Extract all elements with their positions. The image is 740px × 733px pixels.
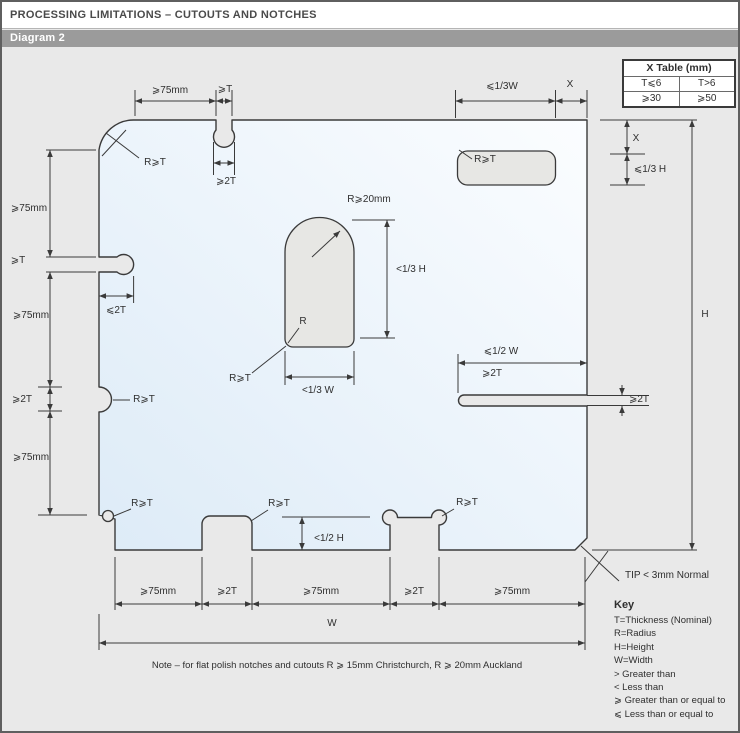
cutout-rounded-rect: [458, 151, 556, 185]
cutout-keyhole: [285, 218, 354, 348]
dim-bottom-2t-1: ⩾2T: [217, 587, 237, 597]
x-table-col1-header: T⩽6: [624, 77, 680, 91]
dim-slot-height: ⩾2T: [629, 395, 649, 405]
dim-cutout-offset-x-right: X: [633, 134, 640, 144]
key-lines: T=Thickness (Nominal)R=RadiusH=HeightW=W…: [614, 614, 740, 721]
key-line: < Less than: [614, 681, 740, 694]
note-text: Note – for flat polish notches and cutou…: [77, 660, 597, 671]
key-line: ⩾ Greater than or equal to: [614, 694, 740, 707]
dim-top-notch-2t: ⩾2T: [216, 177, 236, 187]
dim-top-notch-t: ⩾T: [218, 85, 233, 95]
dim-keyhole-width: <1/3 W: [302, 386, 334, 396]
key-line: ⩽ Less than or equal to: [614, 708, 740, 721]
x-table: X Table (mm) T⩽6 T>6 ⩾30 ⩾50: [622, 59, 736, 108]
dim-bottom-75-3: ⩾75mm: [494, 587, 530, 597]
key-line: T=Thickness (Nominal): [614, 614, 740, 627]
key-line: R=Radius: [614, 627, 740, 640]
key-legend: Key T=Thickness (Nominal)R=RadiusH=Heigh…: [614, 599, 740, 721]
dim-keyhole-height: <1/3 H: [396, 265, 426, 275]
label-bottom-notch2-radius: R⩾T: [456, 498, 478, 508]
dim-cutout-offset-x-top: X: [567, 80, 574, 90]
label-keyhole-radius: R⩾20mm: [347, 195, 390, 205]
label-left-notch-radius: R⩾T: [133, 395, 155, 405]
dim-left-slot-depth: ⩽2T: [106, 306, 126, 316]
key-line: > Greater than: [614, 668, 740, 681]
dim-cutout-height: ⩽1/3 H: [634, 165, 666, 175]
label-keyhole-corner-radius: R⩾T: [229, 374, 251, 384]
label-cutout-radius: R⩾T: [474, 155, 496, 165]
key-title: Key: [614, 599, 740, 611]
x-table-title: X Table (mm): [624, 61, 734, 77]
x-table-col2-header: T>6: [680, 77, 735, 91]
label-bottom-left-radius: R⩾T: [131, 499, 153, 509]
label-top-left-radius: R⩾T: [144, 158, 166, 168]
dim-bottom-notch-depth: <1/2 H: [314, 534, 344, 544]
dim-bottom-75-1: ⩾75mm: [140, 587, 176, 597]
key-line: W=Width: [614, 654, 740, 667]
dim-width: W: [327, 619, 336, 629]
dim-height: H: [701, 310, 708, 320]
label-bottom-notch1-radius: R⩾T: [268, 499, 290, 509]
dim-left-75-1: ⩾75mm: [11, 204, 47, 214]
dim-slot-length: ⩽1/2 W: [484, 347, 519, 357]
corner-relief-notch: [103, 511, 114, 522]
dim-slot-2t: ⩾2T: [482, 369, 502, 379]
dim-top-left-75mm: ⩾75mm: [152, 86, 188, 96]
x-table-header-row: T⩽6 T>6: [624, 77, 734, 92]
dim-left-75-3: ⩾75mm: [13, 453, 49, 463]
diagram-page: PROCESSING LIMITATIONS – CUTOUTS AND NOT…: [0, 0, 740, 733]
key-line: H=Height: [614, 641, 740, 654]
x-table-col1-value: ⩾30: [624, 92, 680, 106]
dim-left-2t: ⩾2T: [12, 395, 32, 405]
dim-left-75-2: ⩾75mm: [13, 311, 49, 321]
dim-left-t: ⩾T: [11, 256, 26, 266]
tip-note: TIP < 3mm Normal: [625, 571, 709, 581]
x-table-value-row: ⩾30 ⩾50: [624, 92, 734, 106]
dim-bottom-2t-2: ⩾2T: [404, 587, 424, 597]
label-keyhole-r: R: [299, 317, 306, 327]
x-table-col2-value: ⩾50: [680, 92, 735, 106]
dim-cutout-width: ⩽1/3W: [486, 82, 518, 92]
dim-bottom-75-2: ⩾75mm: [303, 587, 339, 597]
